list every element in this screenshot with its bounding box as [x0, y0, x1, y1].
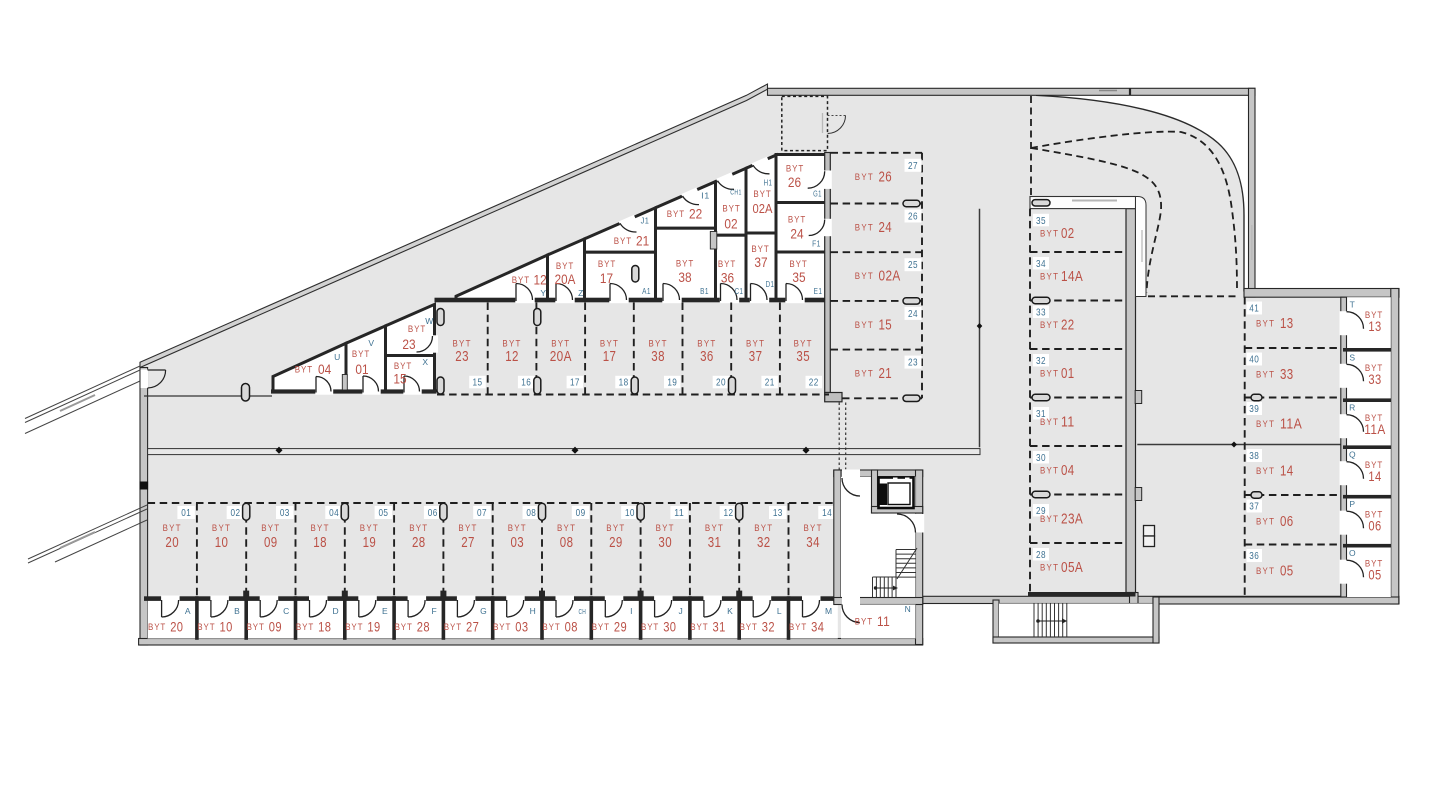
svg-text:01: 01 — [1061, 366, 1075, 382]
svg-text:22: 22 — [809, 376, 819, 388]
svg-text:22: 22 — [1061, 318, 1075, 334]
svg-text:24: 24 — [790, 226, 803, 242]
svg-text:05A: 05A — [1061, 560, 1083, 576]
svg-text:BYT: BYT — [502, 339, 521, 350]
svg-text:BYT: BYT — [394, 361, 412, 371]
svg-text:09: 09 — [264, 535, 278, 551]
svg-text:10: 10 — [220, 619, 233, 635]
svg-text:38: 38 — [651, 349, 665, 365]
svg-text:R: R — [1349, 403, 1356, 413]
svg-text:21: 21 — [636, 233, 649, 249]
svg-text:24: 24 — [879, 220, 893, 236]
svg-text:19: 19 — [367, 619, 380, 635]
svg-text:BYT: BYT — [197, 622, 215, 632]
svg-text:Y: Y — [540, 288, 546, 298]
svg-text:BYT: BYT — [1040, 417, 1059, 428]
svg-text:P: P — [1349, 499, 1355, 509]
svg-text:BYT: BYT — [1256, 419, 1275, 430]
svg-text:04: 04 — [1061, 463, 1075, 479]
svg-text:BYT: BYT — [311, 523, 330, 534]
svg-text:28: 28 — [1036, 549, 1046, 561]
svg-text:21: 21 — [879, 366, 893, 382]
svg-text:BYT: BYT — [740, 622, 758, 632]
svg-text:U: U — [334, 352, 341, 362]
svg-text:BYT: BYT — [247, 622, 265, 632]
svg-text:BYT: BYT — [855, 172, 874, 183]
svg-text:40: 40 — [1249, 354, 1259, 366]
svg-text:BYT: BYT — [789, 622, 807, 632]
svg-text:J1: J1 — [641, 216, 650, 226]
svg-text:BYT: BYT — [656, 523, 675, 534]
svg-text:B1: B1 — [700, 286, 709, 296]
svg-text:BYT: BYT — [1256, 517, 1275, 528]
svg-text:BYT: BYT — [789, 259, 807, 269]
svg-text:I: I — [630, 606, 633, 616]
svg-text:23: 23 — [455, 349, 469, 365]
svg-text:28: 28 — [417, 619, 430, 635]
svg-text:33: 33 — [1368, 371, 1381, 387]
svg-text:11A: 11A — [1364, 421, 1386, 437]
svg-text:BYT: BYT — [1256, 566, 1275, 577]
svg-text:14: 14 — [822, 507, 832, 519]
svg-text:09: 09 — [576, 507, 586, 519]
svg-text:37: 37 — [749, 349, 763, 365]
svg-text:30: 30 — [658, 535, 672, 551]
svg-text:34: 34 — [811, 619, 824, 635]
svg-text:C1: C1 — [735, 286, 744, 296]
svg-text:BYT: BYT — [542, 622, 560, 632]
svg-text:BYT: BYT — [508, 523, 527, 534]
svg-text:20A: 20A — [550, 349, 572, 365]
svg-text:23: 23 — [402, 336, 415, 352]
svg-text:CH: CH — [578, 607, 586, 616]
svg-text:06: 06 — [1368, 518, 1381, 534]
svg-text:17: 17 — [600, 270, 613, 286]
svg-text:E1: E1 — [814, 286, 823, 296]
svg-text:05: 05 — [1368, 567, 1381, 583]
svg-text:41: 41 — [1249, 303, 1259, 315]
svg-text:A: A — [185, 606, 191, 616]
svg-text:BYT: BYT — [794, 339, 813, 350]
svg-text:02A: 02A — [753, 201, 773, 216]
svg-text:36: 36 — [721, 270, 734, 286]
svg-text:G1: G1 — [813, 189, 822, 199]
svg-text:BYT: BYT — [408, 324, 426, 334]
svg-text:10: 10 — [215, 535, 229, 551]
svg-text:19: 19 — [363, 535, 377, 551]
svg-text:BYT: BYT — [1040, 320, 1059, 331]
svg-text:I1: I1 — [701, 191, 710, 201]
svg-text:37: 37 — [754, 254, 767, 270]
svg-text:T: T — [1350, 300, 1356, 310]
svg-text:02: 02 — [724, 216, 737, 232]
svg-text:Z: Z — [578, 288, 584, 298]
svg-text:26: 26 — [908, 211, 918, 223]
svg-text:BYT: BYT — [556, 261, 574, 271]
svg-text:10: 10 — [625, 507, 635, 519]
svg-text:08: 08 — [565, 619, 578, 635]
svg-text:14: 14 — [1368, 468, 1381, 484]
svg-text:30: 30 — [1036, 452, 1046, 464]
svg-text:09: 09 — [269, 619, 282, 635]
svg-text:BYT: BYT — [690, 622, 708, 632]
svg-text:BYT: BYT — [855, 617, 873, 627]
svg-text:28: 28 — [412, 535, 426, 551]
svg-text:08: 08 — [526, 507, 536, 519]
svg-text:01: 01 — [355, 361, 368, 377]
svg-text:V: V — [368, 338, 374, 348]
svg-text:39: 39 — [1249, 403, 1259, 415]
svg-text:L: L — [777, 606, 782, 616]
svg-text:BYT: BYT — [212, 523, 231, 534]
svg-text:26: 26 — [788, 174, 801, 190]
svg-text:B: B — [234, 606, 240, 616]
svg-text:BYT: BYT — [1256, 466, 1275, 477]
svg-text:BYT: BYT — [753, 189, 771, 199]
svg-text:BYT: BYT — [551, 339, 570, 350]
svg-text:17: 17 — [570, 376, 580, 388]
svg-text:16: 16 — [521, 376, 531, 388]
svg-text:34: 34 — [1036, 258, 1046, 270]
svg-text:BYT: BYT — [614, 236, 632, 246]
svg-text:24: 24 — [908, 308, 918, 320]
svg-text:32: 32 — [757, 535, 771, 551]
svg-text:26: 26 — [879, 169, 893, 185]
svg-text:13: 13 — [1280, 316, 1294, 332]
svg-text:BYT: BYT — [395, 622, 413, 632]
svg-text:BYT: BYT — [409, 523, 428, 534]
svg-text:18: 18 — [318, 619, 331, 635]
svg-text:H: H — [530, 606, 537, 616]
svg-text:A1: A1 — [642, 286, 651, 296]
svg-text:BYT: BYT — [148, 622, 166, 632]
svg-text:22: 22 — [689, 206, 702, 222]
svg-text:BYT: BYT — [804, 523, 823, 534]
svg-text:BYT: BYT — [512, 275, 530, 285]
svg-text:03: 03 — [511, 535, 525, 551]
svg-text:17: 17 — [603, 349, 617, 365]
svg-text:37: 37 — [1249, 501, 1259, 513]
svg-text:27: 27 — [908, 160, 918, 172]
svg-text:27: 27 — [466, 619, 479, 635]
svg-text:33: 33 — [1036, 307, 1046, 319]
svg-text:X: X — [422, 357, 428, 367]
svg-text:BYT: BYT — [754, 523, 773, 534]
svg-text:38: 38 — [1249, 450, 1259, 462]
svg-text:E: E — [382, 606, 388, 616]
svg-text:23: 23 — [908, 357, 918, 369]
svg-text:06: 06 — [1280, 514, 1294, 530]
svg-text:14A: 14A — [1061, 269, 1083, 285]
svg-text:BYT: BYT — [722, 204, 740, 214]
svg-text:Q: Q — [1349, 450, 1356, 460]
svg-text:04: 04 — [329, 507, 339, 519]
svg-text:BYT: BYT — [295, 365, 313, 375]
svg-text:BYT: BYT — [786, 164, 804, 174]
svg-text:H1: H1 — [764, 178, 773, 188]
svg-text:20: 20 — [716, 376, 726, 388]
svg-text:32: 32 — [762, 619, 775, 635]
svg-text:20A: 20A — [555, 272, 576, 287]
svg-text:20: 20 — [170, 619, 183, 635]
svg-text:13: 13 — [1368, 318, 1381, 334]
svg-text:BYT: BYT — [788, 215, 806, 225]
svg-text:15: 15 — [473, 376, 483, 388]
svg-text:13: 13 — [773, 507, 783, 519]
svg-text:19: 19 — [667, 376, 677, 388]
svg-text:05: 05 — [378, 507, 388, 519]
svg-text:23A: 23A — [1061, 512, 1083, 528]
svg-text:BYT: BYT — [453, 339, 472, 350]
svg-text:34: 34 — [806, 535, 820, 551]
svg-text:32: 32 — [1036, 355, 1046, 367]
svg-text:BYT: BYT — [697, 339, 716, 350]
svg-text:21: 21 — [765, 376, 775, 388]
svg-text:K: K — [727, 606, 733, 616]
svg-text:15: 15 — [879, 317, 893, 333]
svg-text:BYT: BYT — [352, 349, 370, 359]
svg-text:BYT: BYT — [163, 523, 182, 534]
svg-text:29: 29 — [609, 535, 623, 551]
svg-text:14: 14 — [1280, 464, 1294, 480]
svg-text:12: 12 — [534, 272, 547, 288]
svg-text:12: 12 — [505, 349, 519, 365]
svg-text:BYT: BYT — [1256, 370, 1275, 381]
svg-text:BYT: BYT — [1040, 272, 1059, 283]
svg-text:31: 31 — [713, 619, 726, 635]
svg-text:BYT: BYT — [598, 259, 616, 269]
svg-text:38: 38 — [678, 269, 691, 285]
svg-text:BYT: BYT — [649, 339, 668, 350]
svg-text:BYT: BYT — [493, 622, 511, 632]
svg-text:BYT: BYT — [296, 622, 314, 632]
svg-text:BYT: BYT — [855, 271, 874, 282]
svg-text:08: 08 — [560, 535, 574, 551]
svg-text:36: 36 — [1249, 550, 1259, 562]
svg-text:29: 29 — [614, 619, 627, 635]
svg-text:06: 06 — [428, 507, 438, 519]
svg-text:18: 18 — [313, 535, 327, 551]
svg-text:02A: 02A — [879, 269, 901, 285]
svg-text:11: 11 — [877, 613, 890, 629]
svg-text:BYT: BYT — [705, 523, 724, 534]
svg-text:BYT: BYT — [718, 259, 736, 269]
svg-text:BYT: BYT — [855, 369, 874, 380]
svg-text:01: 01 — [181, 507, 191, 519]
svg-text:CH1: CH1 — [730, 188, 742, 197]
svg-text:11: 11 — [674, 507, 684, 519]
svg-text:BYT: BYT — [1040, 369, 1059, 380]
svg-text:BYT: BYT — [592, 622, 610, 632]
svg-text:02: 02 — [1061, 226, 1075, 242]
svg-text:BYT: BYT — [746, 339, 765, 350]
svg-text:BYT: BYT — [1040, 228, 1059, 239]
svg-text:BYT: BYT — [360, 523, 379, 534]
svg-text:30: 30 — [663, 619, 676, 635]
svg-text:04: 04 — [318, 361, 331, 377]
svg-text:BYT: BYT — [345, 622, 363, 632]
svg-text:15: 15 — [393, 371, 406, 387]
svg-text:35: 35 — [1036, 215, 1046, 227]
svg-text:S: S — [1349, 352, 1355, 362]
svg-text:BYT: BYT — [676, 259, 694, 269]
svg-text:J: J — [679, 606, 684, 616]
svg-text:18: 18 — [619, 376, 629, 388]
svg-text:BYT: BYT — [261, 523, 280, 534]
svg-text:D: D — [332, 606, 339, 616]
svg-text:C: C — [283, 606, 290, 616]
svg-text:27: 27 — [461, 535, 475, 551]
svg-text:BYT: BYT — [600, 339, 619, 350]
svg-text:O: O — [1349, 548, 1356, 558]
svg-text:33: 33 — [1280, 367, 1294, 383]
svg-text:05: 05 — [1280, 564, 1294, 580]
svg-text:BYT: BYT — [751, 244, 769, 254]
svg-text:N: N — [905, 604, 912, 614]
svg-text:11A: 11A — [1280, 417, 1302, 433]
svg-text:F1: F1 — [812, 239, 821, 249]
svg-text:BYT: BYT — [1040, 466, 1059, 477]
svg-text:25: 25 — [908, 259, 918, 271]
svg-text:35: 35 — [796, 349, 810, 365]
svg-text:BYT: BYT — [557, 523, 576, 534]
svg-text:07: 07 — [477, 507, 487, 519]
svg-text:12: 12 — [724, 507, 734, 519]
svg-text:M: M — [825, 606, 833, 616]
svg-text:D1: D1 — [766, 279, 775, 289]
svg-text:G: G — [480, 606, 487, 616]
svg-text:BYT: BYT — [667, 209, 685, 219]
svg-text:03: 03 — [515, 619, 528, 635]
svg-text:BYT: BYT — [641, 622, 659, 632]
svg-text:20: 20 — [165, 535, 179, 551]
svg-text:BYT: BYT — [1040, 563, 1059, 574]
svg-text:11: 11 — [1061, 415, 1075, 431]
svg-text:BYT: BYT — [855, 223, 874, 234]
svg-text:BYT: BYT — [444, 622, 462, 632]
svg-text:36: 36 — [700, 349, 714, 365]
svg-text:31: 31 — [708, 535, 722, 551]
svg-text:W: W — [425, 316, 434, 326]
svg-text:BYT: BYT — [1040, 514, 1059, 525]
svg-text:BYT: BYT — [855, 320, 874, 331]
svg-text:F: F — [432, 606, 438, 616]
svg-text:02: 02 — [231, 507, 241, 519]
svg-text:35: 35 — [792, 269, 805, 285]
svg-text:BYT: BYT — [606, 523, 625, 534]
svg-text:BYT: BYT — [1256, 319, 1275, 330]
svg-text:BYT: BYT — [458, 523, 477, 534]
svg-text:03: 03 — [280, 507, 290, 519]
